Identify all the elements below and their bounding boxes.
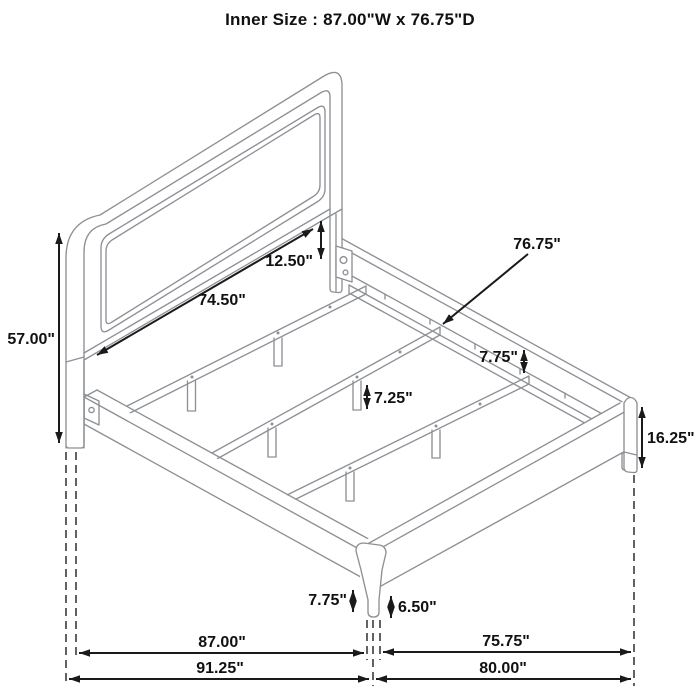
slat-support-leg	[432, 430, 440, 458]
slat-support-leg	[274, 338, 282, 366]
slat-support-leg	[188, 381, 196, 411]
dim-label-corner-leg: 7.75"	[308, 592, 347, 609]
dim-label-overall-width: 91.25"	[196, 660, 244, 677]
diagram-page: Inner Size : 87.00"W x 76.75"D	[0, 0, 700, 700]
foot-rail	[360, 400, 639, 598]
dim-label-side-rail-height: 16.25"	[647, 430, 695, 447]
dim-label-slat-length: 76.75"	[513, 236, 561, 253]
front-side-rail	[82, 388, 382, 585]
bed-frame-diagram: 57.00" 74.50" 12.50" 76.75" 7.75" 7.25" …	[0, 0, 700, 700]
dim-label-leg-exposed: 6.50"	[398, 599, 437, 616]
dim-label-inner-width: 87.00"	[198, 634, 246, 651]
slat-support-leg	[353, 381, 361, 410]
corner-leg	[622, 398, 637, 473]
dim-label-headboard-inner-width: 74.50"	[198, 292, 246, 309]
dim-label-inner-depth: 75.75"	[482, 633, 530, 650]
dim-label-panel-gap: 12.50"	[265, 253, 313, 270]
dim-label-support-leg: 7.25"	[374, 390, 413, 407]
dim-label-headboard-height: 57.00"	[7, 331, 55, 348]
dim-label-rail-to-slat: 7.75"	[479, 349, 518, 366]
dim-label-overall-depth: 80.00"	[479, 660, 527, 677]
slat-support-leg	[268, 428, 276, 457]
mounting-bracket	[336, 246, 352, 282]
slat-support-leg	[346, 472, 354, 501]
